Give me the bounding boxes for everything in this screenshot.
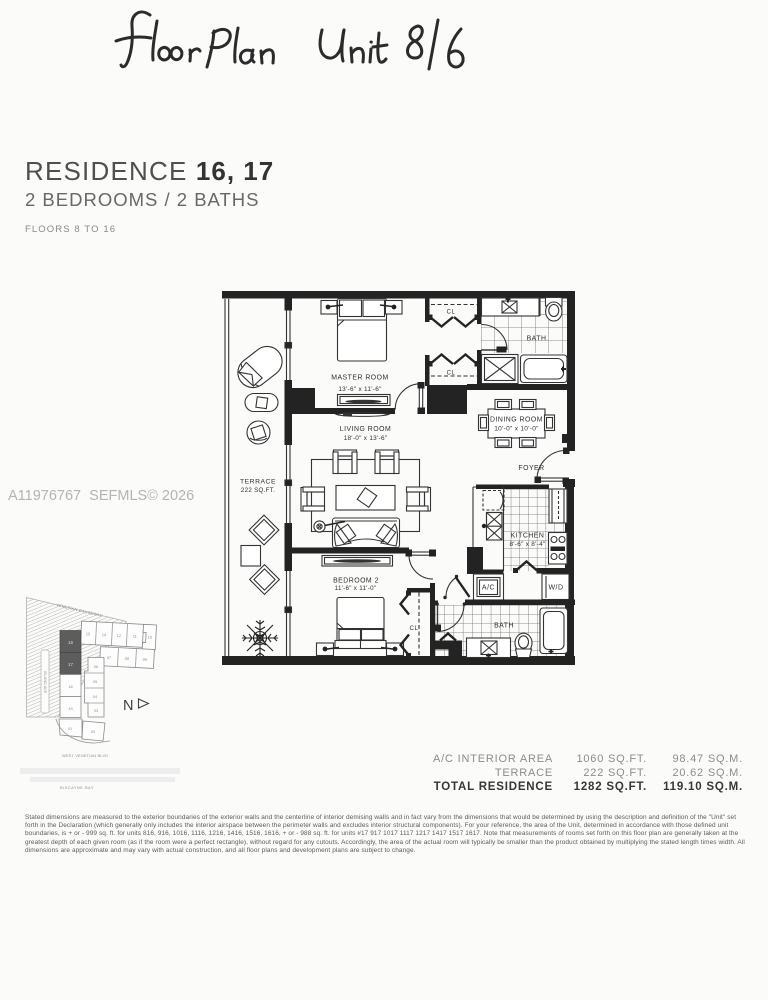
svg-text:FOYER: FOYER [518,465,544,472]
svg-text:03: 03 [94,708,98,713]
svg-text:09: 09 [143,657,148,662]
svg-text:18'-0" x 13'-6": 18'-0" x 13'-6" [344,435,388,442]
svg-text:TERRACE: TERRACE [240,479,276,486]
svg-text:08: 08 [125,656,130,661]
svg-text:19: 19 [68,706,72,711]
svg-text:W/D: W/D [548,585,563,592]
svg-text:01: 01 [68,726,72,731]
svg-text:07: 07 [107,655,112,660]
svg-text:CL: CL [447,371,456,377]
svg-text:CL: CL [410,626,419,632]
svg-text:8'-6" x 8'-4": 8'-6" x 8'-4" [509,541,545,548]
svg-text:N: N [123,698,133,714]
svg-text:A/C: A/C [482,585,495,592]
svg-text:BISCAYNE BAY: BISCAYNE BAY [60,785,94,790]
svg-text:LIVING ROOM: LIVING ROOM [340,426,391,433]
svg-text:BATH: BATH [527,336,547,343]
svg-text:02: 02 [91,729,95,734]
svg-text:CL: CL [447,310,456,316]
svg-text:BATH: BATH [494,623,514,630]
svg-text:DINING ROOM: DINING ROOM [490,417,543,424]
svg-text:18: 18 [68,684,72,689]
svg-text:11'-6" x 11'-0": 11'-6" x 11'-0" [335,585,377,592]
svg-text:VENETIAN CAUSEWAY: VENETIAN CAUSEWAY [56,602,103,618]
svg-text:11: 11 [133,634,137,639]
svg-text:10'-0" x 10'-0": 10'-0" x 10'-0" [494,426,539,433]
svg-text:15: 15 [86,631,91,636]
svg-text:222 SQ.FT.: 222 SQ.FT. [241,487,275,494]
svg-text:05: 05 [93,679,97,684]
svg-text:16: 16 [68,640,74,645]
svg-text:06: 06 [94,664,98,669]
svg-text:WEST VENETIAN BLVD: WEST VENETIAN BLVD [62,753,108,758]
svg-text:ISLAND AVE: ISLAND AVE [43,671,48,694]
svg-text:12: 12 [117,633,122,638]
svg-text:13'-6" x 11'-6": 13'-6" x 11'-6" [338,386,381,393]
svg-text:17: 17 [68,662,74,667]
svg-text:MASTER ROOM: MASTER ROOM [331,375,389,382]
svg-text:KITCHEN: KITCHEN [511,533,545,540]
svg-text:BEDROOM 2: BEDROOM 2 [333,578,379,585]
